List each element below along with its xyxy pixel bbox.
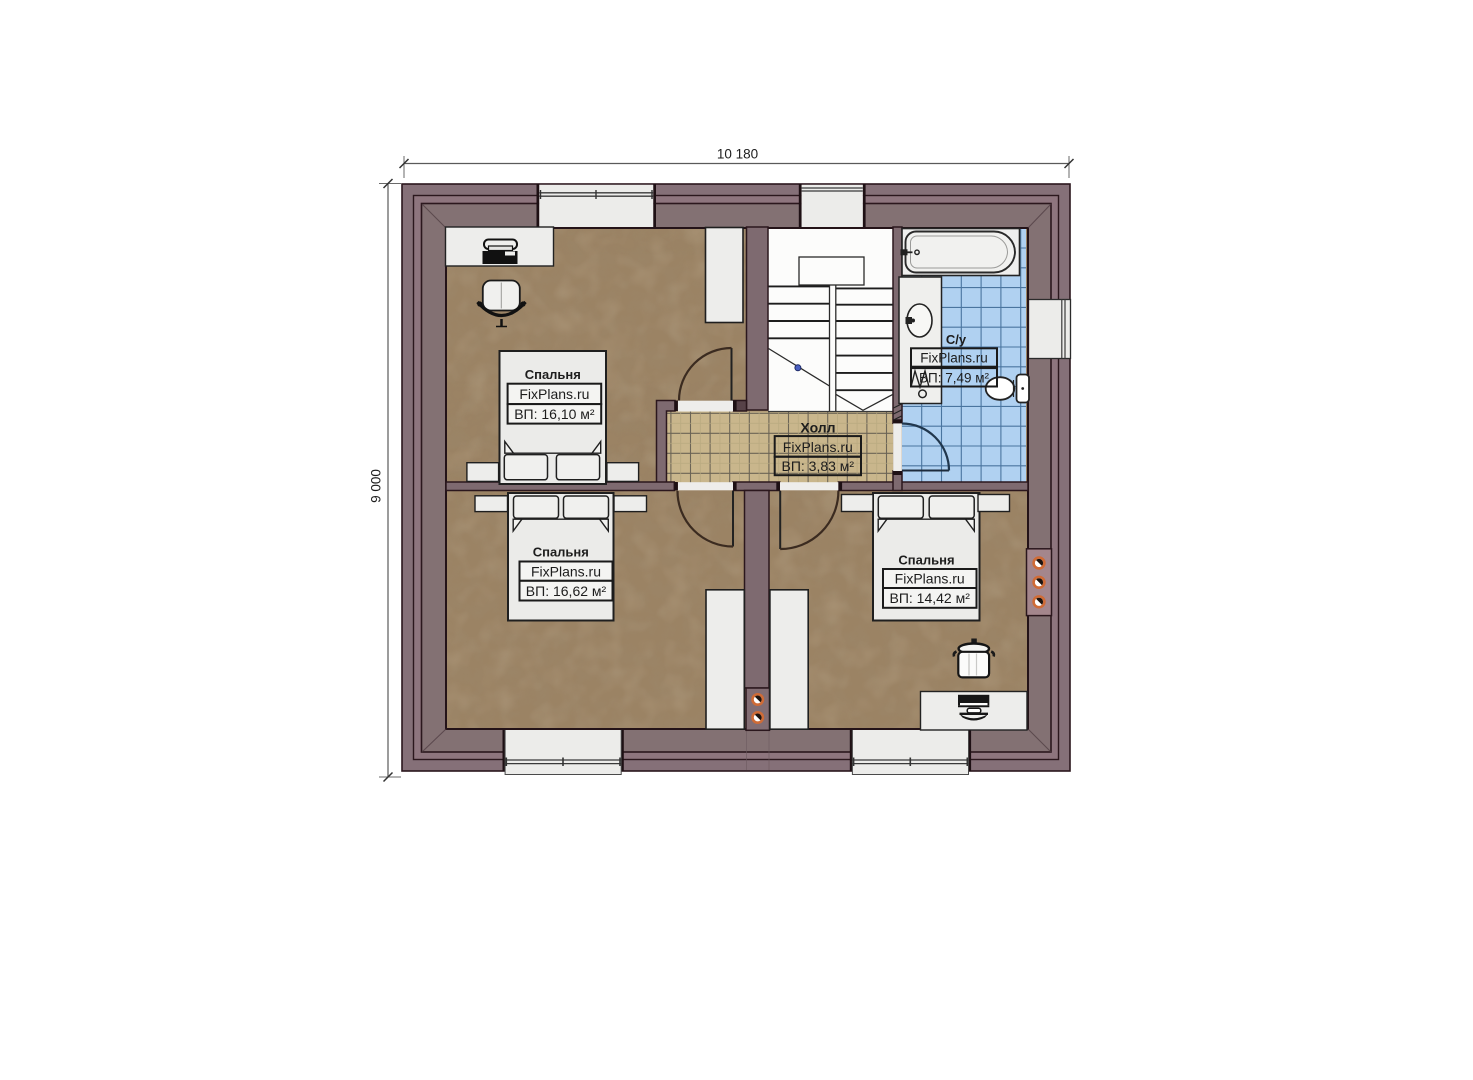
svg-text:9 000: 9 000 [369,469,384,503]
svg-text:FixPlans.ru: FixPlans.ru [895,571,965,587]
svg-text:С/у: С/у [946,332,967,347]
svg-text:Холл: Холл [800,420,835,436]
svg-text:Спальня: Спальня [898,553,954,568]
svg-text:10 180: 10 180 [717,147,758,162]
svg-text:FixPlans.ru: FixPlans.ru [531,563,601,579]
svg-text:ВП: 14,42 м²: ВП: 14,42 м² [890,590,971,606]
svg-text:ВП: 7,49 м²: ВП: 7,49 м² [919,370,990,385]
svg-text:ВП: 16,10 м²: ВП: 16,10 м² [514,406,595,422]
svg-text:Спальня: Спальня [533,545,589,560]
svg-text:FixPlans.ru: FixPlans.ru [519,386,589,402]
svg-text:FixPlans.ru: FixPlans.ru [783,439,853,455]
svg-text:Спальня: Спальня [525,367,581,382]
svg-text:FixPlans.ru: FixPlans.ru [920,351,988,366]
svg-text:ВП: 3,83 м²: ВП: 3,83 м² [781,458,854,474]
svg-text:ВП: 16,62 м²: ВП: 16,62 м² [526,583,607,599]
